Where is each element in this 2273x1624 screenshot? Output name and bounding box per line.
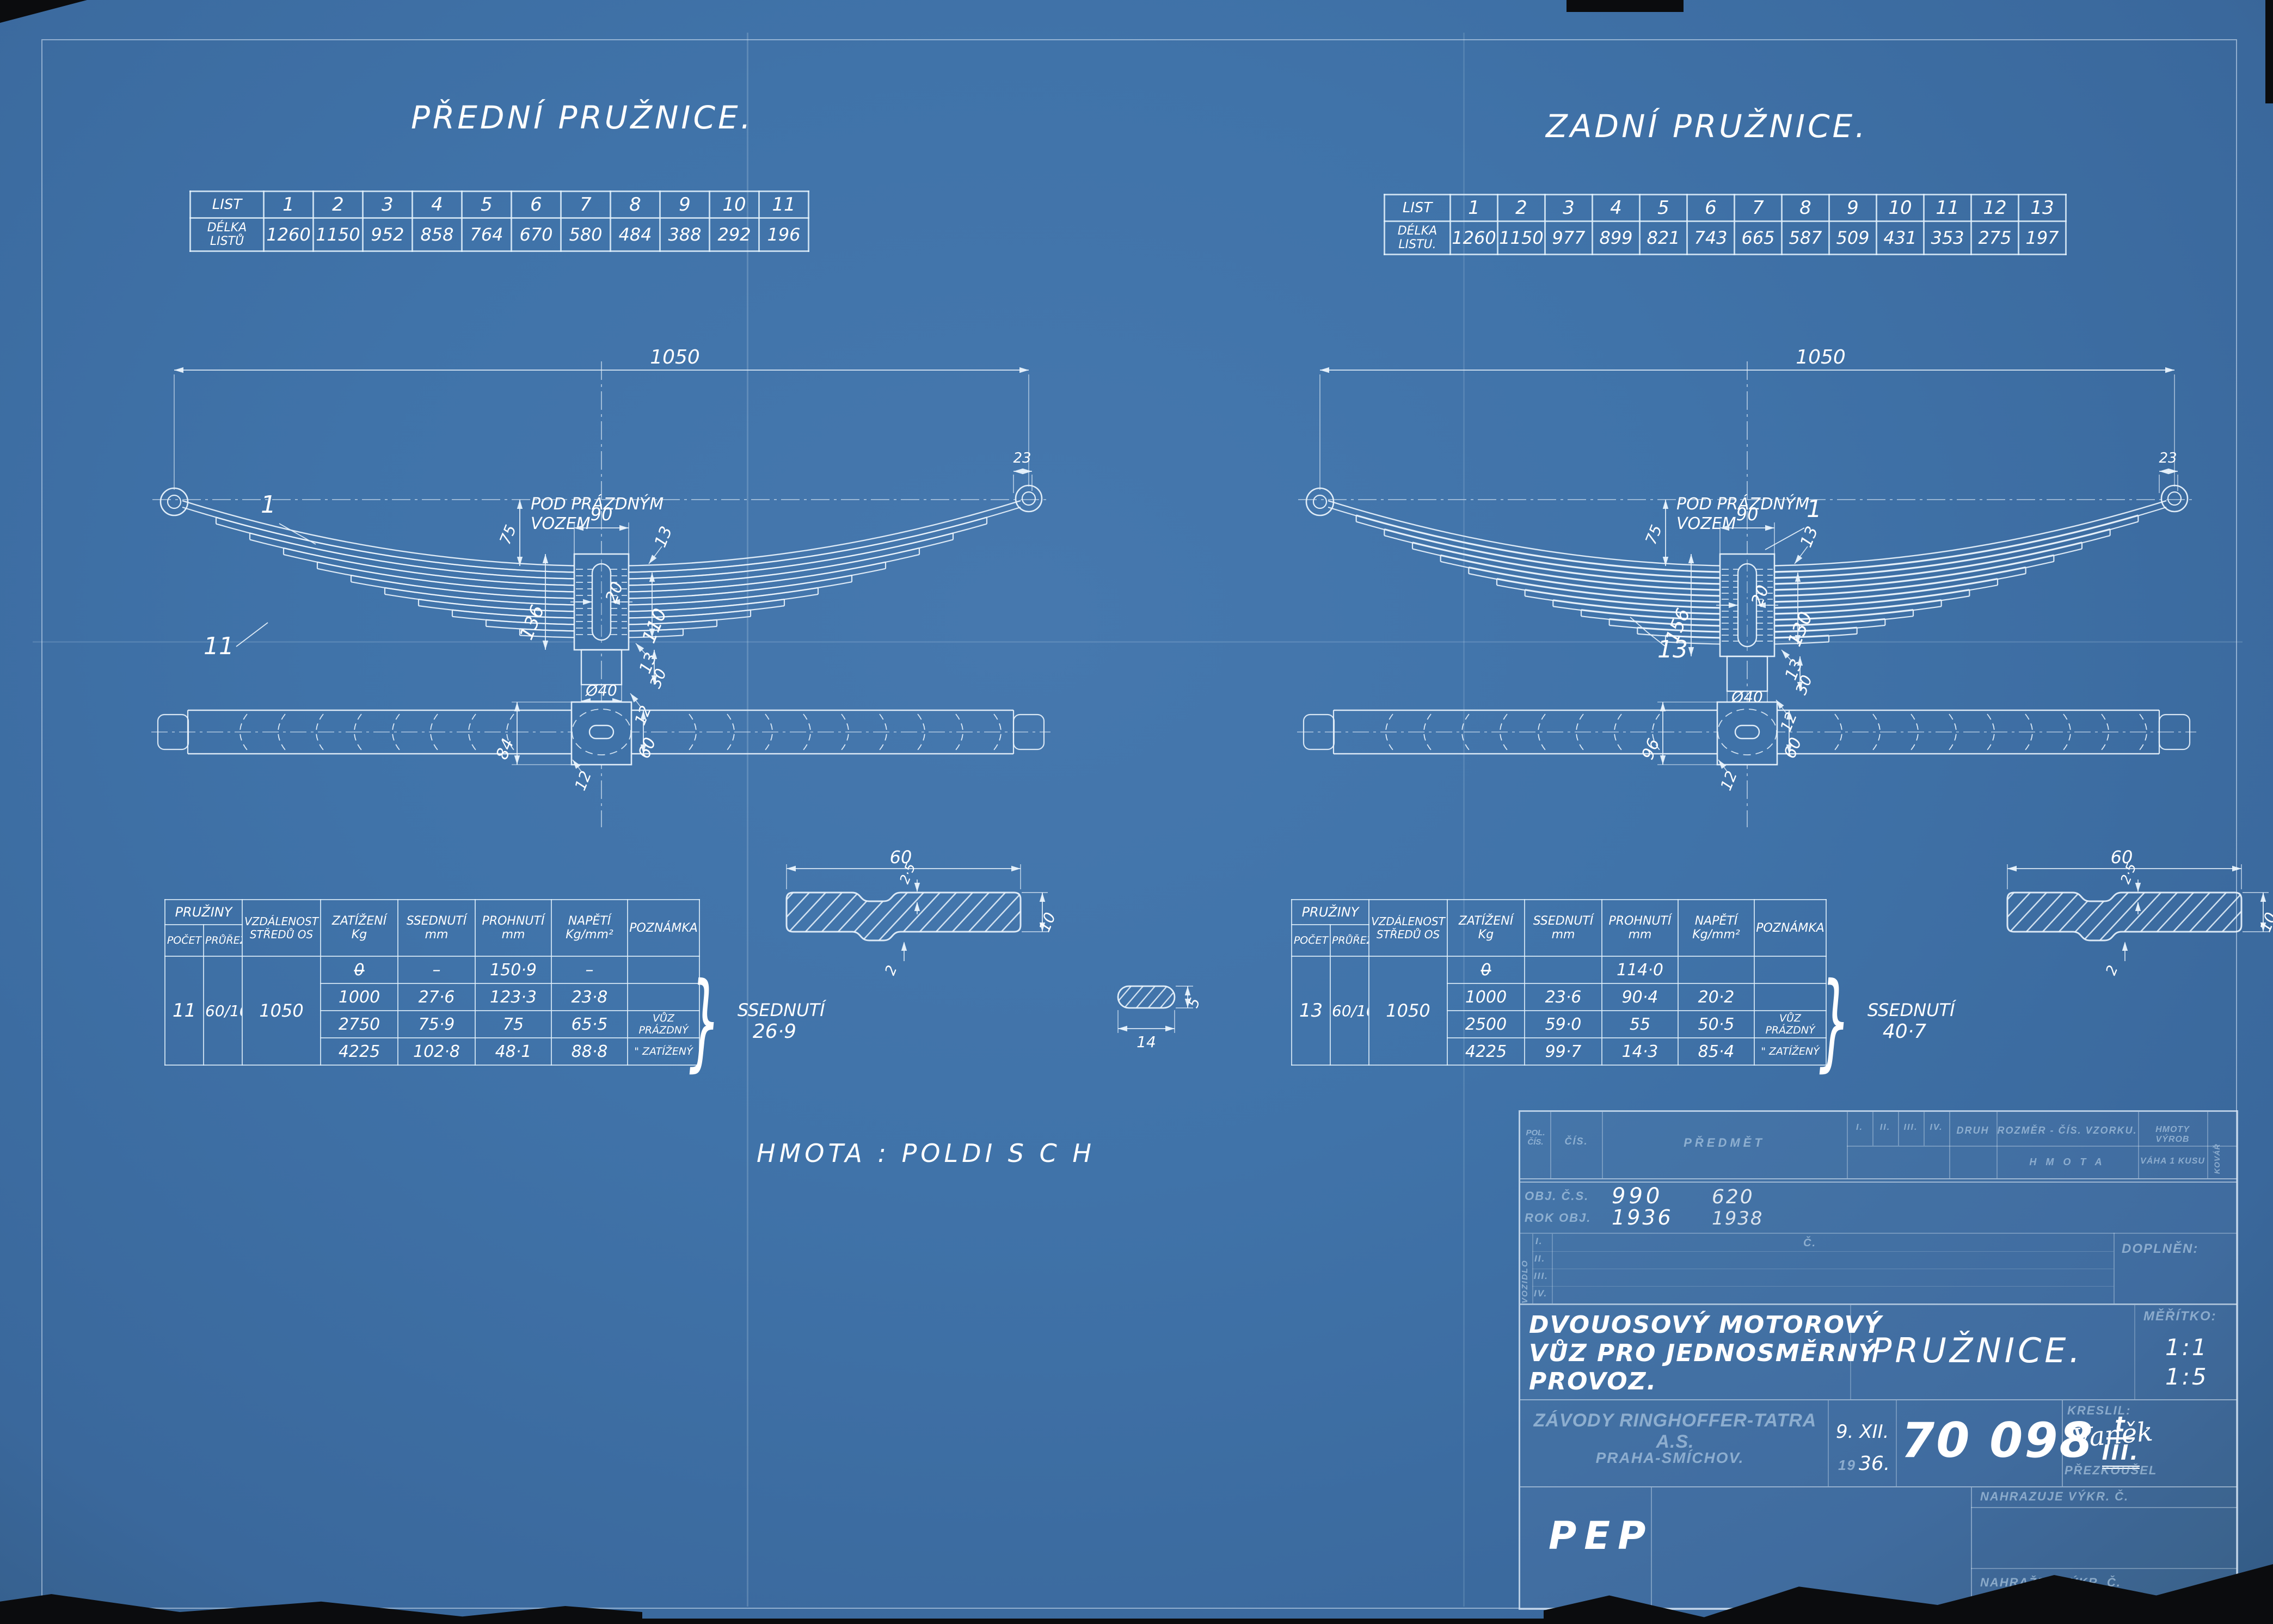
header-roman-2: II.: [1872, 1123, 1898, 1133]
spec-header: VZDÁLENOSTSTŘEDŮ OS: [1369, 900, 1447, 956]
spec-settling: [1525, 956, 1602, 983]
leaf-length-value: 899: [1593, 222, 1640, 255]
leaf-length-value: 821: [1640, 222, 1687, 255]
leaf-number: 11: [759, 192, 809, 218]
dimension-label: 10: [2256, 910, 2273, 934]
leaf-number: 6: [512, 192, 561, 218]
dimension-label: 96: [1638, 736, 1664, 762]
spec-settling: 99·7: [1525, 1038, 1602, 1065]
order-number-1938: 620: [1712, 1186, 1754, 1208]
spec-header: NAPĚTÍKg/mm²: [1678, 900, 1754, 956]
spec-deflection: 114·0: [1602, 956, 1678, 983]
leaf-number: 2: [1498, 195, 1545, 222]
spec-load: 2500: [1447, 1011, 1525, 1038]
dimension-label: 75: [496, 522, 520, 547]
spec-header: PROHNUTÍmm: [475, 900, 551, 956]
dimension-label: 84: [493, 736, 518, 762]
dimension-label: 2: [2103, 963, 2122, 978]
leaf-number: 7: [1735, 195, 1782, 222]
leaf-number: 3: [363, 192, 413, 218]
header-kovar: KOVÁŘ: [2213, 1119, 2221, 1174]
spec-settling: 102·8: [398, 1038, 475, 1065]
spec-section: 60/10: [204, 956, 242, 1065]
spec-axle-distance: 1050: [1369, 956, 1447, 1065]
header-vyrob: HMOTY VÝROB: [2138, 1125, 2207, 1145]
header-roman-1: I.: [1847, 1123, 1872, 1133]
spec-leaf-count: 13: [1292, 956, 1330, 1065]
leaf-length-value: 743: [1687, 222, 1735, 255]
scale-value-2: 1:5: [2165, 1363, 2209, 1390]
leaf-number: 4: [413, 192, 462, 218]
scan-artifact: [2265, 0, 2273, 103]
vozidlo-label: VOZIDLO: [1520, 1238, 1529, 1303]
dimension-label: 75: [1642, 522, 1666, 547]
scan-artifact: [0, 0, 87, 23]
spec-deflection: 123·3: [475, 983, 551, 1011]
leaf-length-value: 858: [413, 218, 462, 251]
spec-stress: 20·2: [1678, 983, 1754, 1011]
leaf-row-label: DÉLKALISTŮ: [191, 218, 264, 251]
nahrazuje-label: NAHRAZUJE VÝKR. Č.: [1980, 1490, 2129, 1504]
leaf-length-value: 1150: [1498, 222, 1545, 255]
front-note-label: SSEDNUTÍ: [738, 1000, 825, 1020]
leaf-length-value: 484: [611, 218, 660, 251]
spec-stress: [1678, 956, 1754, 983]
spec-header-group: PRUŽINY: [1292, 900, 1369, 925]
rev-row-i: I.: [1535, 1236, 1543, 1247]
spec-load: 4225: [321, 1038, 398, 1065]
dimension-label: 2: [882, 963, 901, 978]
order-year-1936: 1936: [1612, 1205, 1673, 1229]
dimension-label: 11: [204, 632, 234, 660]
company-city: PRAHA-SMÍCHOV.: [1580, 1449, 1760, 1467]
spec-header: SSEDNUTÍmm: [398, 900, 475, 956]
part-name: PRUŽNICE.: [1871, 1331, 2083, 1370]
rear-leaf-length-table: LIST12345678910111213DÉLKALISTU.12601150…: [1384, 194, 2067, 255]
spec-header: POZNÁMKA: [1754, 900, 1826, 956]
leaf-length-value: 587: [1782, 222, 1829, 255]
dimension-label: 1: [261, 491, 276, 519]
header-hmota: H M O T A: [1996, 1157, 2138, 1168]
spec-stress: –: [551, 956, 628, 983]
spec-load: 1000: [321, 983, 398, 1011]
rear-leaf-cross-section: 602·5102: [1975, 849, 2273, 1001]
leaf-number: 5: [1640, 195, 1687, 222]
spec-deflection: 150·9: [475, 956, 551, 983]
leaf-length-value: 197: [2019, 222, 2066, 255]
dimension-label: 13: [651, 524, 677, 550]
dimension-label: VOZEM: [1676, 514, 1736, 533]
leaf-number: 13: [2019, 195, 2066, 222]
leaf-length-value: 1260: [1451, 222, 1498, 255]
title-block: POL. ČÍS. ČÍS. PŘEDMĚT I. II. III. IV. D…: [1519, 1110, 2238, 1610]
spec-header-group: PRUŽINY: [165, 900, 242, 925]
date-day-month: 9. XII.: [1836, 1421, 1889, 1443]
leaf-length-value: 275: [1971, 222, 2019, 255]
doplnen-label: DOPLNĚN:: [2122, 1241, 2198, 1257]
header-roman-3: III.: [1898, 1123, 1924, 1133]
spec-header: ZATÍŽENÍKg: [321, 900, 398, 956]
dimension-label: 13: [1657, 636, 1688, 663]
leaf-number: 8: [611, 192, 660, 218]
dimension-label: 12: [571, 768, 595, 793]
leaf-number: 7: [561, 192, 611, 218]
date-year-prefix: 19: [1838, 1457, 1856, 1473]
order-number-label: OBJ. Č.S.: [1525, 1189, 1589, 1203]
leaf-number: 10: [710, 192, 759, 218]
leaf-length-value: 977: [1545, 222, 1593, 255]
leaf-length-value: 580: [561, 218, 611, 251]
leaf-number: 1: [264, 192, 314, 218]
leaf-length-value: 388: [660, 218, 710, 251]
spec-stress: 85·4: [1678, 1038, 1754, 1065]
leaf-number: 8: [1782, 195, 1829, 222]
spec-settling: 23·6: [1525, 983, 1602, 1011]
rear-note-label: SSEDNUTÍ: [1867, 1000, 1955, 1020]
spec-header: VZDÁLENOSTSTŘEDŮ OS: [242, 900, 321, 956]
spec-header: PROHNUTÍmm: [1602, 900, 1678, 956]
header-cis: ČÍS.: [1552, 1136, 1601, 1147]
dimension-label: 60: [635, 735, 660, 761]
dimension-label: 13: [1797, 524, 1822, 550]
rear-spring-spec-table: PRUŽINYVZDÁLENOSTSTŘEDŮ OSZATÍŽENÍKgSSED…: [1291, 899, 1827, 1066]
rear-note-value: 40·7: [1883, 1020, 1926, 1043]
rev-row-iii: III.: [1534, 1271, 1549, 1282]
spec-settling: 59·0: [1525, 1011, 1602, 1038]
leaf-number: 2: [314, 192, 363, 218]
pep-mark: PEP: [1549, 1514, 1653, 1558]
rev-row-ii: II.: [1534, 1253, 1545, 1264]
leaf-number: 5: [462, 192, 512, 218]
leaf-length-value: 764: [462, 218, 512, 251]
order-year-1938: 1938: [1712, 1208, 1764, 1229]
cislo-label: Č.: [1803, 1237, 1816, 1250]
front-leaf-length-table: LIST1234567891011DÉLKALISTŮ1260115095285…: [189, 190, 809, 252]
leaf-number: 6: [1687, 195, 1735, 222]
spec-header: SSEDNUTÍmm: [1525, 900, 1602, 956]
spec-deflection: 14·3: [1602, 1038, 1678, 1065]
spec-deflection: 55: [1602, 1011, 1678, 1038]
leaf-row-label: LIST: [1385, 195, 1451, 222]
spec-load: 4225: [1447, 1038, 1525, 1065]
dimension-label: 90: [591, 504, 613, 525]
header-rozmer: ROZMĚR - ČÍS. VZORKU.: [1996, 1125, 2138, 1136]
drawn-by-signature: Vaněk: [2072, 1417, 2154, 1454]
dimension-label: 23: [2159, 450, 2177, 466]
leaf-number: 4: [1593, 195, 1640, 222]
order-year-label: ROK OBJ.: [1525, 1211, 1591, 1225]
dimension-label: 14: [1136, 1033, 1156, 1051]
rear-settling-note: } SSEDNUTÍ 40·7: [1806, 968, 1955, 1074]
front-note-value: 26·9: [753, 1020, 796, 1043]
spec-settling: –: [398, 956, 475, 983]
leaf-number: 9: [1829, 195, 1877, 222]
header-vaha: VÁHA 1 KUSU: [2138, 1157, 2207, 1166]
scale-label: MĚŘÍTKO:: [2143, 1309, 2217, 1324]
front-spring-drawing: 10502375POD PRÁZDNÝMVOZEM901313611020133…: [136, 348, 1061, 838]
leaf-length-value: 665: [1735, 222, 1782, 255]
leaf-length-value: 353: [1924, 222, 1971, 255]
rev-row-iv: IV.: [1534, 1288, 1547, 1299]
subject-line-1: DVOUOSOVÝ MOTOROVÝ: [1529, 1311, 1882, 1339]
spec-axle-distance: 1050: [242, 956, 321, 1065]
spec-header: NAPĚTÍKg/mm²: [551, 900, 628, 956]
spec-load: 1000: [1447, 983, 1525, 1011]
spec-stress: 23·8: [551, 983, 628, 1011]
spec-deflection: 90·4: [1602, 983, 1678, 1011]
spec-header: POČET: [165, 925, 204, 956]
date-year: 19 36.: [1838, 1453, 1890, 1475]
kreslil-label: KRESLIL:: [2067, 1404, 2131, 1418]
spec-section: 60/10: [1330, 956, 1369, 1065]
spec-settling: 27·6: [398, 983, 475, 1011]
small-leaf-cross-section: 145: [1105, 968, 1236, 1066]
leaf-number: 10: [1877, 195, 1924, 222]
spec-load: 0: [321, 956, 398, 983]
dimension-label: VOZEM: [531, 514, 591, 533]
leaf-row-label: DÉLKALISTU.: [1385, 222, 1451, 255]
spec-leaf-count: 11: [165, 956, 204, 1065]
header-roman-4: IV.: [1924, 1123, 1949, 1133]
leaf-length-value: 670: [512, 218, 561, 251]
company-name: ZÁVODY RINGHOFFER-TATRA A.S.: [1527, 1410, 1823, 1453]
dimension-label: 10: [1035, 910, 1059, 934]
blueprint-sheet: PŘEDNÍ PRUŽNICE. ZADNÍ PRUŽNICE. LIST123…: [0, 0, 2273, 1624]
spec-deflection: 75: [475, 1011, 551, 1038]
subject-line-3: PROVOZ.: [1529, 1368, 1657, 1395]
dimension-label: 1050: [650, 346, 700, 368]
drawing-number-value: 70 098: [1901, 1412, 2094, 1468]
front-spring-title: PŘEDNÍ PRUŽNICE.: [411, 99, 753, 136]
prezkousel-label: PŘEZKOUŠEL: [2065, 1463, 2157, 1478]
spec-load: 2750: [321, 1011, 398, 1038]
dimension-label: 23: [1013, 450, 1031, 466]
front-spring-spec-table: PRUŽINYVZDÁLENOSTSTŘEDŮ OSZATÍŽENÍKgSSED…: [164, 899, 700, 1066]
spec-header: PRŮŘEZ: [1330, 925, 1369, 956]
dimension-label: 12: [1717, 768, 1741, 793]
brace-glyph: }: [689, 959, 721, 1082]
leaf-row-label: LIST: [191, 192, 264, 218]
rear-spring-title: ZADNÍ PRUŽNICE.: [1546, 108, 1868, 145]
leaf-number: 9: [660, 192, 710, 218]
leaf-length-value: 196: [759, 218, 809, 251]
dimension-label: Ø40: [585, 681, 617, 699]
spec-stress: 65·5: [551, 1011, 628, 1038]
leaf-length-value: 431: [1877, 222, 1924, 255]
leaf-length-value: 292: [710, 218, 759, 251]
subject-line-2: VŮZ PRO JEDNOSMĚRNÝ: [1529, 1339, 1877, 1367]
date-year-value: 36.: [1859, 1453, 1890, 1475]
spec-settling: 75·9: [398, 1011, 475, 1038]
spec-deflection: 48·1: [475, 1038, 551, 1065]
leaf-length-value: 1260: [264, 218, 314, 251]
spec-header: PRŮŘEZ: [204, 925, 242, 956]
spec-load: 0: [1447, 956, 1525, 983]
leaf-number: 12: [1971, 195, 2019, 222]
brace-glyph: }: [1819, 959, 1851, 1082]
scale-value-1: 1:1: [2165, 1334, 2209, 1361]
dimension-label: 1: [1807, 495, 1822, 523]
dimension-label: 1050: [1796, 346, 1846, 368]
spec-stress: 50·5: [1678, 1011, 1754, 1038]
leaf-number: 1: [1451, 195, 1498, 222]
leaf-length-value: 952: [363, 218, 413, 251]
spec-stress: 88·8: [551, 1038, 628, 1065]
header-predmet: PŘEDMĚT: [1602, 1136, 1847, 1150]
spec-header: POČET: [1292, 925, 1330, 956]
header-druh: DRUH: [1949, 1125, 1996, 1136]
leaf-length-value: 509: [1829, 222, 1877, 255]
scan-artifact: [1566, 0, 1684, 12]
front-leaf-cross-section: 602·5102: [754, 849, 1080, 1001]
dimension-label: 60: [1780, 735, 1806, 761]
spec-header: ZATÍŽENÍKg: [1447, 900, 1525, 956]
header-pol: POL. ČÍS.: [1521, 1128, 1550, 1147]
dimension-label: 90: [1736, 504, 1759, 525]
spec-header: POZNÁMKA: [628, 900, 699, 956]
material-note: HMOTA : POLDI S C H: [757, 1139, 1095, 1168]
leaf-number: 11: [1924, 195, 1971, 222]
leaf-number: 3: [1545, 195, 1593, 222]
leaf-length-value: 1150: [314, 218, 363, 251]
rear-spring-drawing: 10502375POD PRÁZDNÝMVOZEM901315613020133…: [1282, 348, 2207, 838]
